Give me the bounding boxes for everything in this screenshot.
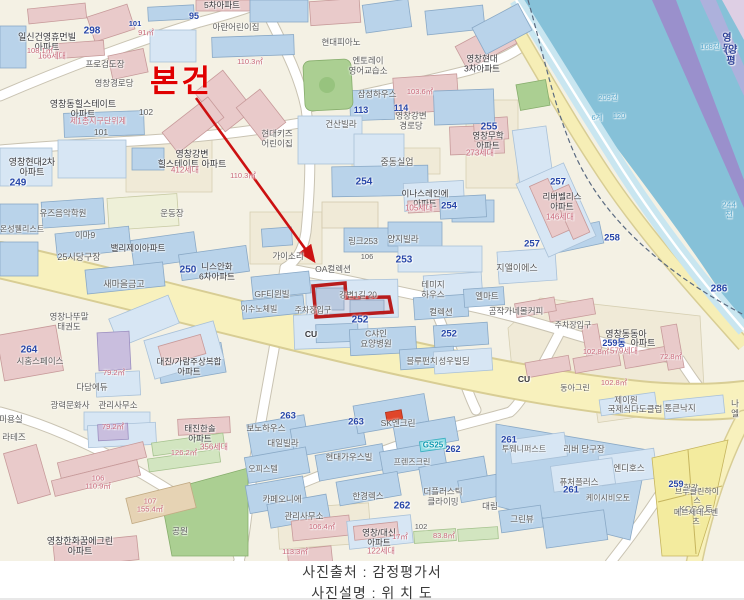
map-label: 257	[524, 240, 540, 251]
map-label: 영창강변 경로당	[395, 111, 426, 130]
map-label: 250	[180, 264, 197, 275]
map-label: 아란어린이집	[213, 23, 260, 33]
map-label: 91㎡	[138, 29, 154, 37]
map-label: 168천	[700, 43, 719, 51]
map-label: 브루클린하이스	[674, 488, 721, 506]
map-label: 미용실	[0, 415, 23, 425]
map-label: 엔디호스	[613, 464, 644, 474]
map-label: GF티윈빌	[254, 290, 289, 300]
map-label: OA컬렉션	[315, 265, 351, 275]
map-label: 컬렉션	[429, 308, 452, 318]
map-label: 동아그린	[560, 385, 589, 394]
map-label: 광력문화사	[50, 401, 89, 411]
map-label: 72.8㎡	[660, 353, 682, 361]
map-label: 83.8㎡	[433, 532, 455, 540]
map-label: 110.3㎡	[230, 172, 256, 180]
map-label: 아파트	[631, 338, 656, 348]
map-label: 79.2㎡	[102, 423, 124, 431]
map-label: 263	[280, 412, 296, 423]
map-label: 가이소리	[272, 252, 303, 262]
map-label: 이나스레인에 아파트	[402, 189, 449, 208]
map-label: 259동	[602, 338, 625, 348]
map-label: 298	[84, 25, 101, 36]
map-label: 102	[415, 523, 428, 531]
map-label: 다담에듀	[76, 383, 107, 393]
map-label: 제이원	[614, 396, 637, 406]
map-label: 라테즈	[2, 433, 25, 443]
map-label: 261	[563, 486, 579, 497]
map-label: 곰작가네몰커피	[489, 307, 544, 317]
caption-source: 사진출처 : 감정평가서	[0, 562, 744, 582]
map-label: 209천	[598, 94, 617, 102]
map-label: 국제식다도클럽	[608, 405, 663, 415]
map-label: 249	[10, 177, 27, 188]
map-label: 146세대	[546, 214, 574, 223]
map-label: 유즈음악학원	[40, 209, 87, 219]
map-label: 시홈스페이스	[17, 357, 64, 367]
location-map: 5차아파트95일신건영휴먼빌 아파트29810191㎡166세대108.1㎡프로…	[0, 0, 744, 563]
map-label: 프렌즈크린	[394, 459, 431, 468]
map-label: 니스안화 6차아파트	[199, 262, 235, 281]
map-label: KCC오토	[679, 505, 713, 515]
map-label: 제1종지구단위계	[70, 118, 126, 127]
map-label: 102.8㎡	[601, 379, 627, 387]
map-label: 양지빌라	[387, 235, 418, 245]
map-label: 106 110.9㎡	[85, 475, 111, 492]
map-label: GS25	[423, 442, 443, 451]
map-label: 영창경로당	[94, 79, 133, 89]
map-label: 579세대	[610, 348, 638, 357]
map-label: 113	[354, 105, 369, 115]
map-label: 102	[139, 108, 153, 118]
map-label: 286	[711, 283, 728, 294]
map-label: 메르세데스벤츠	[672, 509, 720, 527]
subject-marker-label: 본건	[150, 56, 213, 101]
map-label: 257	[550, 178, 566, 189]
map-label: 엔토레이 영어교습소	[348, 56, 387, 75]
map-label: 영창/대신 아파트	[362, 528, 396, 547]
map-label: SK엔크린	[381, 419, 416, 429]
map-label: 6계	[591, 114, 602, 122]
map-label: 지앨이에스	[496, 263, 537, 273]
map-label: 관리사무소	[98, 401, 137, 411]
map-label: 262	[394, 500, 411, 511]
map-label: 영창무학 아파트	[472, 131, 503, 150]
caption-description: 사진설명 : 위 치 도	[0, 583, 744, 600]
map-label: 태진한솔 아파트	[184, 424, 215, 443]
map-label: 102.8㎡	[583, 348, 609, 356]
map-label: 114	[394, 103, 409, 113]
map-label: 25시당구장	[57, 252, 100, 262]
map-label: 현대피아노	[321, 38, 360, 48]
map-label: 이수노체빌	[241, 306, 278, 315]
map-label: 영창동힐스테이트 아파트	[50, 99, 116, 119]
map-label: 412세대	[171, 167, 199, 176]
map-label: 356세대	[200, 444, 228, 453]
map-label: 17㎡	[392, 533, 408, 541]
map-label: 카페오니에	[262, 495, 301, 505]
map-label: 대림	[482, 502, 498, 512]
map-label: 255	[481, 121, 498, 132]
map-label: 대일빌라	[267, 439, 298, 449]
map-label: 113.3㎡	[282, 548, 308, 556]
map-label: 105세대	[405, 205, 433, 214]
map-label: 106	[361, 253, 374, 261]
map-label: 대진/가람주상복합 아파트	[157, 357, 222, 376]
map-label: 262	[445, 444, 460, 454]
map-label: 건산빌라	[325, 120, 356, 130]
map-label: 케이시비오토	[586, 495, 630, 504]
map-label: 보노하우스	[246, 424, 285, 434]
map-label: 투웨니퍼스트	[502, 446, 546, 455]
map-label: 108.1㎡	[27, 47, 53, 55]
map-label: 273세대	[466, 150, 494, 159]
map-label: 온성웰리스트	[0, 226, 44, 235]
map-label: 106.4㎡	[309, 523, 335, 531]
map-label: 영창강변 힐스테이트 아파트	[158, 149, 227, 169]
map-label: 오피스텔	[248, 466, 277, 475]
map-label: 영창현대 3차아파트	[464, 54, 500, 73]
map-label: 영동	[719, 33, 736, 55]
map-label: CU	[305, 330, 317, 340]
map-label: 영창한화꿈에그린 아파트	[47, 536, 113, 556]
map-label: 블루펀치	[406, 357, 437, 367]
map-label: 주차장입구	[555, 322, 592, 331]
map-label: 퓨처플러스	[559, 478, 598, 488]
map-label: 126.2㎡	[171, 449, 197, 457]
map-label: 244천	[722, 200, 737, 219]
map-label: CU	[518, 375, 530, 385]
map-label: 110.3㎡	[237, 58, 263, 66]
map-label: 현대키즈 어린이집	[261, 129, 292, 148]
map-label: 101	[94, 128, 108, 138]
map-label: 영창동동아	[605, 329, 646, 339]
map-labels: 5차아파트95일신건영휴먼빌 아파트29810191㎡166세대108.1㎡프로…	[0, 0, 744, 563]
map-label: 252	[352, 314, 369, 325]
map-label: 259	[668, 479, 683, 489]
map-label: 더플러스틱 클라이밍	[423, 487, 462, 506]
map-label: 영창나뚜말 태권도	[49, 312, 88, 331]
map-label: 한경렉스	[352, 492, 383, 502]
map-label: 새마을금고	[103, 279, 144, 289]
map-label: 강변1길 20	[339, 292, 377, 301]
map-label: 나엘	[731, 399, 740, 418]
map-label: 주차장입구	[295, 307, 332, 316]
map-label: 253	[396, 254, 413, 265]
map-label: 122세대	[367, 548, 395, 557]
map-label: 엘마트	[475, 292, 498, 302]
map-label: 삼성하우스	[357, 90, 396, 100]
map-label: 79.2㎡	[103, 369, 125, 377]
screenshot: 5차아파트95일신건영휴먼빌 아파트29810191㎡166세대108.1㎡프로…	[0, 0, 744, 600]
map-label: 현대가우스빌	[326, 453, 373, 463]
map-label: 프로검도장	[85, 60, 124, 70]
map-label: 264	[21, 344, 38, 355]
map-label: 한강	[684, 485, 699, 494]
caption: 사진출처 : 감정평가서 사진설명 : 위 치 도	[0, 561, 744, 600]
map-label: 5차아파트	[204, 1, 240, 11]
map-label: 이마9	[75, 231, 95, 241]
map-label: 공원	[172, 527, 188, 537]
map-label: 103.6㎡	[407, 88, 433, 96]
map-label: 영창현대2차 아파트	[9, 157, 55, 177]
map-label: 일신건영휴먼빌 아파트	[18, 32, 76, 52]
map-label: 254	[356, 176, 373, 187]
map-label: 166세대	[38, 53, 66, 62]
map-label: (양평	[725, 45, 738, 67]
map-label: C샤인 요양병원	[360, 329, 391, 348]
map-label: 밸리제이아파트	[111, 244, 166, 254]
map-label: 링크253	[348, 237, 378, 247]
map-label: 95	[189, 11, 199, 21]
map-label: 254	[441, 202, 457, 213]
map-label: 운동장	[160, 209, 183, 219]
map-label: 리버벨리스 아파트	[542, 192, 581, 211]
map-label: 리버 당구장	[563, 445, 604, 455]
map-label: 테미지 하우스	[421, 280, 444, 299]
map-label: 107 155.4㎡	[137, 498, 163, 515]
map-label: 263	[348, 418, 364, 429]
map-label: 관리사무소	[284, 512, 323, 522]
map-label: 252	[441, 330, 457, 341]
map-label: 중동실업	[380, 157, 413, 167]
map-label: 통큰낙지	[664, 404, 695, 414]
map-label: 261	[501, 436, 517, 447]
map-label: 120	[613, 112, 626, 120]
map-label: 그린뷰	[510, 515, 533, 525]
map-label: 258	[604, 234, 620, 245]
map-label: 101	[129, 20, 142, 28]
map-label: 성우빌딩	[438, 357, 469, 367]
